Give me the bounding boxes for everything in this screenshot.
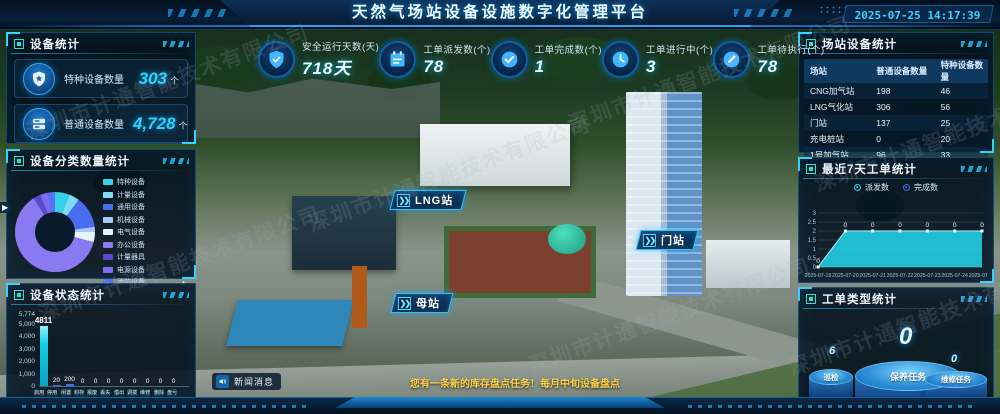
normal-device-card: 普通设备数量 4,728 个 [14, 104, 188, 143]
bar-ytick-label: 1,000 [19, 371, 35, 378]
svg-text:2: 2 [813, 229, 817, 235]
kpi-orders-in-progress: 工单进行中(个) 3 [602, 36, 713, 82]
stat-unit: 个 [179, 119, 188, 132]
panel-title: 设备状态统计 [30, 287, 105, 303]
panel-title-bar: 最近7天工单统计 [799, 158, 993, 179]
legend-label: 通用设备 [117, 202, 145, 212]
legend-swatch [103, 229, 113, 235]
legend-swatch [103, 267, 113, 273]
status-bar-chart: 5,7745,0004,0003,0002,0001,0000 48112020… [13, 315, 189, 387]
legend-label: 电气设备 [117, 227, 145, 237]
header-decor-right [734, 9, 792, 17]
svg-text:1: 1 [813, 247, 817, 253]
order-type-value: 6 [829, 345, 835, 357]
legend-swatch [103, 242, 113, 248]
legend-item[interactable]: 特种设备 [103, 177, 145, 187]
calendar-icon [379, 41, 416, 78]
kpi-label: 工单待执行(个) [757, 42, 824, 56]
header-datetime-box: 2025-07-25 14:17:39 [842, 5, 994, 23]
panel-title-bar: 场站设备统计 [799, 33, 993, 54]
bar-value-label: 0 [120, 378, 124, 385]
table-row[interactable]: LNG气化站30656 [804, 99, 988, 115]
table-cell: 门站 [804, 115, 870, 131]
bar-slot: 0 [117, 315, 126, 386]
stat-label: 特种设备数量 [64, 71, 124, 86]
scene-low-building [706, 240, 790, 288]
legend-swatch [103, 217, 113, 223]
legend-label: 计量设备 [117, 190, 145, 200]
scene-blue-canopy [226, 300, 353, 346]
map-label-lng-station[interactable]: LNG站 [390, 190, 467, 210]
legend-dot [903, 184, 910, 191]
bar-ytick-label: 3,000 [19, 346, 35, 353]
legend-item[interactable]: 机械设备 [103, 215, 145, 225]
week-orders-legend: 派发数 完成数 [799, 181, 993, 193]
panel-title-decor [163, 41, 189, 47]
legend-item-completed[interactable]: 完成数 [903, 182, 938, 193]
bar-value-label: 200 [64, 376, 75, 383]
panel-week-orders: 最近7天工单统计 派发数 完成数 00.511.522.530000000202… [798, 157, 994, 283]
kpi-value: 78 [757, 57, 824, 77]
svg-text:2025-07-19: 2025-07-19 [805, 273, 832, 279]
notice-chip: 新闻消息 [212, 373, 281, 390]
legend-swatch [103, 254, 113, 260]
category-donut-chart [15, 192, 95, 272]
scene-orange-derrick [352, 266, 367, 328]
legend-item[interactable]: 通用设备 [103, 202, 145, 212]
bar-slot: 4811 [39, 315, 48, 386]
marquee-text: 您有一条新的库存盘点任务！每月中旬设备盘点 [410, 375, 620, 390]
legend-label: 完成数 [914, 182, 938, 193]
svg-text:2025-07-23: 2025-07-23 [914, 273, 941, 279]
speaker-icon [216, 375, 229, 388]
footer-center-decor [335, 397, 665, 408]
kpi-orders-pending: 工单待执行(个) 78 [713, 36, 824, 82]
edge-pointer-icon[interactable]: ▶ [0, 202, 10, 213]
legend-label: 计量器具 [117, 252, 145, 262]
chevron-right-icon [397, 194, 410, 207]
legend-label: 派发数 [865, 182, 889, 193]
legend-dot [854, 184, 861, 191]
svg-text:2025-07-20: 2025-07-20 [832, 273, 859, 279]
svg-text:2025-07-25: 2025-07-25 [969, 273, 987, 279]
legend-swatch [103, 192, 113, 198]
bar-value-label: 0 [107, 378, 111, 385]
kpi-orders-completed: 工单完成数(个) 1 [491, 36, 602, 82]
panel-title-icon [806, 164, 816, 174]
legend-item[interactable]: 计量设备 [103, 190, 145, 200]
stat-unit: 个 [170, 74, 179, 87]
order-type-label: 保养任务 [890, 370, 926, 383]
legend-swatch [103, 204, 113, 210]
svg-text:0: 0 [813, 265, 817, 271]
legend-item[interactable]: 办公设备 [103, 240, 145, 250]
legend-label: 办公设备 [117, 240, 145, 250]
bar-value-label: 0 [133, 378, 137, 385]
table-cell: 137 [870, 115, 934, 131]
legend-swatch [103, 179, 113, 185]
kpi-label: 安全运行天数(天) [302, 39, 379, 53]
map-label-gate-station[interactable]: 门站 [636, 230, 699, 250]
footer-dots-right [688, 405, 978, 408]
table-row[interactable]: 门站13725 [804, 115, 988, 131]
panel-title-bar: 设备分类数量统计 [7, 150, 195, 171]
panel-title: 场站设备统计 [822, 36, 897, 52]
bar-slot: 0 [104, 315, 113, 386]
kpi-value: 1 [535, 57, 602, 77]
order-type-chart: 6 0 0 巡检 保养任务 维修任务 [799, 309, 993, 409]
panel-category-stats: 设备分类数量统计 特种设备计量设备通用设备机械设备电气设备办公设备计量器具电源设… [6, 149, 196, 279]
legend-label: 电源设备 [117, 265, 145, 275]
bar-slot: 200 [65, 315, 74, 386]
device-stat-cards: 特种设备数量 303 个 普通设备数量 4,728 个 [7, 54, 195, 148]
order-type-label: 维修任务 [941, 374, 971, 385]
svg-text:0: 0 [816, 258, 820, 265]
shield-check-icon [258, 41, 295, 78]
page-title: 天然气场站设备设施数字化管理平台 [220, 0, 780, 26]
panel-title-decor [961, 41, 987, 47]
panel-title: 设备统计 [30, 36, 80, 52]
legend-item[interactable]: 电源设备 [103, 265, 145, 275]
svg-text:2025-07-24: 2025-07-24 [941, 273, 968, 279]
kpi-orders-dispatched: 工单派发数(个) 78 [379, 36, 490, 82]
shield-star-icon [23, 63, 55, 95]
bar-ytick-label: 4,000 [19, 333, 35, 340]
panel-title-bar: 设备统计 [7, 33, 195, 54]
bar-plot-area: 48112020000000000 [39, 315, 189, 387]
table-header: 普通设备数量 [870, 59, 934, 83]
server-icon [23, 108, 55, 140]
svg-text:2.5: 2.5 [808, 220, 817, 226]
panel-station-stats: 场站设备统计 场站 普通设备数量 特种设备数量 CNG加气站19846LNG气化… [798, 32, 994, 153]
panel-title-icon [14, 290, 24, 300]
stat-label: 普通设备数量 [64, 116, 124, 131]
table-cell: 20 [935, 131, 988, 147]
kpi-row: 安全运行天数(天) 718天 工单派发数(个) 78 工单完成数(个) 1 [258, 36, 766, 82]
bar-ytick-label: 5,774 [19, 311, 35, 318]
svg-text:3: 3 [813, 211, 817, 217]
bar-value-label: 20 [53, 377, 60, 384]
svg-text:0: 0 [953, 222, 957, 229]
table-cell: 25 [935, 115, 988, 131]
bar-value-label: 0 [172, 378, 176, 385]
bar-slot: 0 [169, 315, 178, 386]
footer-bar [0, 397, 1000, 414]
table-cell: CNG加气站 [804, 83, 870, 99]
panel-device-stats: 设备统计 特种设备数量 303 个 普通设备数量 4,728 [6, 32, 196, 144]
bar-value-label: 0 [146, 378, 150, 385]
bar-slot: 20 [52, 315, 61, 386]
panel-order-types: 工单类型统计 6 0 0 巡检 保养任务 维修任务 [798, 287, 994, 411]
panel-status-stats: 设备状态统计 5,7745,0004,0003,0002,0001,0000 4… [6, 283, 196, 411]
table-row[interactable]: CNG加气站19846 [804, 83, 988, 99]
pencil-circle-icon [713, 41, 750, 78]
table-row[interactable]: 充电桩站020 [804, 131, 988, 147]
special-device-card: 特种设备数量 303 个 [14, 59, 188, 98]
kpi-value: 3 [646, 57, 713, 77]
footer-dots-left [22, 405, 312, 408]
table-header-row: 场站 普通设备数量 特种设备数量 [804, 59, 988, 83]
svg-text:0: 0 [844, 222, 848, 229]
panel-title-decor [163, 292, 189, 298]
panel-title: 最近7天工单统计 [822, 161, 917, 177]
bar-value-label: 0 [159, 378, 163, 385]
kpi-value: 718天 [302, 54, 379, 79]
svg-text:1.5: 1.5 [808, 238, 817, 244]
bar-slot: 0 [130, 315, 139, 386]
chevron-right-icon [398, 297, 411, 310]
category-legend: 特种设备计量设备通用设备机械设备电气设备办公设备计量器具电源设备消防设备 [103, 177, 145, 287]
dashboard-screen: 天然气场站设备设施数字化管理平台 2025-07-25 14:17:39 安全运… [0, 0, 1000, 414]
scene-teal-dome [548, 224, 586, 254]
kpi-label: 工单进行中(个) [646, 42, 713, 56]
check-circle-icon [491, 41, 528, 78]
legend-label: 特种设备 [117, 177, 145, 187]
kpi-value: 78 [423, 57, 490, 77]
table-cell: 充电桩站 [804, 131, 870, 147]
scene-industrial-tanks [292, 196, 396, 270]
bar-value-label: 0 [81, 378, 85, 385]
kpi-safe-days: 安全运行天数(天) 718天 [258, 36, 379, 82]
panel-title-decor [961, 166, 987, 172]
notice-label: 新闻消息 [234, 375, 274, 388]
week-orders-svg: 00.511.522.5300000002025-07-192025-07-20… [803, 193, 987, 285]
table-cell: 0 [870, 131, 934, 147]
panel-title-icon [806, 294, 816, 304]
table-cell: LNG气化站 [804, 99, 870, 115]
clock-icon [602, 41, 639, 78]
order-type-value: 0 [951, 353, 957, 365]
header-title-band: 天然气场站设备设施数字化管理平台 [220, 0, 780, 27]
category-chart-body: 特种设备计量设备通用设备机械设备电气设备办公设备计量器具电源设备消防设备 ▲ [7, 171, 195, 291]
panel-title-icon [14, 156, 24, 166]
panel-title-decor [163, 158, 189, 164]
svg-text:0: 0 [871, 222, 875, 229]
week-orders-area-chart: 00.511.522.5300000002025-07-192025-07-20… [803, 193, 989, 290]
map-label-text: 门站 [661, 232, 685, 248]
bar[interactable] [53, 385, 61, 386]
svg-text:2025-07-22: 2025-07-22 [887, 273, 914, 279]
bar[interactable] [40, 326, 48, 386]
panel-title-decor [961, 296, 987, 302]
map-label-mother-station[interactable]: 母站 [391, 293, 454, 313]
panel-title-bar: 工单类型统计 [799, 288, 993, 309]
svg-text:0: 0 [926, 222, 930, 229]
bar[interactable] [66, 384, 74, 386]
svg-text:0: 0 [980, 222, 984, 229]
order-type-label: 巡检 [824, 372, 839, 383]
table-cell: 306 [870, 99, 934, 115]
bar-value-label: 0 [94, 378, 98, 385]
bar-slot: 0 [78, 315, 87, 386]
svg-text:0: 0 [898, 222, 902, 229]
svg-text:2025-07-21: 2025-07-21 [859, 273, 886, 279]
panel-title-icon [14, 39, 24, 49]
legend-label: 机械设备 [117, 215, 145, 225]
bar-y-axis: 5,7745,0004,0003,0002,0001,0000 [13, 315, 37, 387]
scene-white-building [420, 124, 570, 186]
kpi-label: 工单派发数(个) [423, 42, 490, 56]
table-cell: 46 [935, 83, 988, 99]
station-table: 场站 普通设备数量 特种设备数量 CNG加气站19846LNG气化站30656门… [804, 59, 988, 163]
bar-value-label: 4811 [35, 316, 52, 325]
table-cell: 198 [870, 83, 934, 99]
panel-title: 设备分类数量统计 [30, 153, 130, 169]
bar-ytick-label: 2,000 [19, 358, 35, 365]
bar-ytick-label: 5,000 [19, 321, 35, 328]
map-label-text: 母站 [416, 295, 440, 311]
bar-slot: 0 [91, 315, 100, 386]
scene-tower-facade [626, 92, 702, 296]
order-type-value: 0 [899, 323, 912, 351]
legend-item[interactable]: 电气设备 [103, 227, 145, 237]
legend-item[interactable]: 计量器具 [103, 252, 145, 262]
datetime-text: 2025-07-25 14:17:39 [855, 7, 981, 25]
kpi-label: 工单完成数(个) [535, 42, 602, 56]
chevron-right-icon [643, 234, 656, 247]
panel-title: 工单类型统计 [822, 291, 897, 307]
stat-value: 303 [139, 69, 167, 89]
bar-slot: 0 [143, 315, 152, 386]
stat-value: 4,728 [133, 114, 176, 134]
map-label-text: LNG站 [415, 192, 453, 208]
header-decor-left [168, 9, 226, 17]
legend-item-dispatched[interactable]: 派发数 [854, 182, 889, 193]
table-header: 特种设备数量 [935, 59, 988, 83]
table-cell: 56 [935, 99, 988, 115]
bar-slot: 0 [156, 315, 165, 386]
panel-title-bar: 设备状态统计 [7, 284, 195, 305]
